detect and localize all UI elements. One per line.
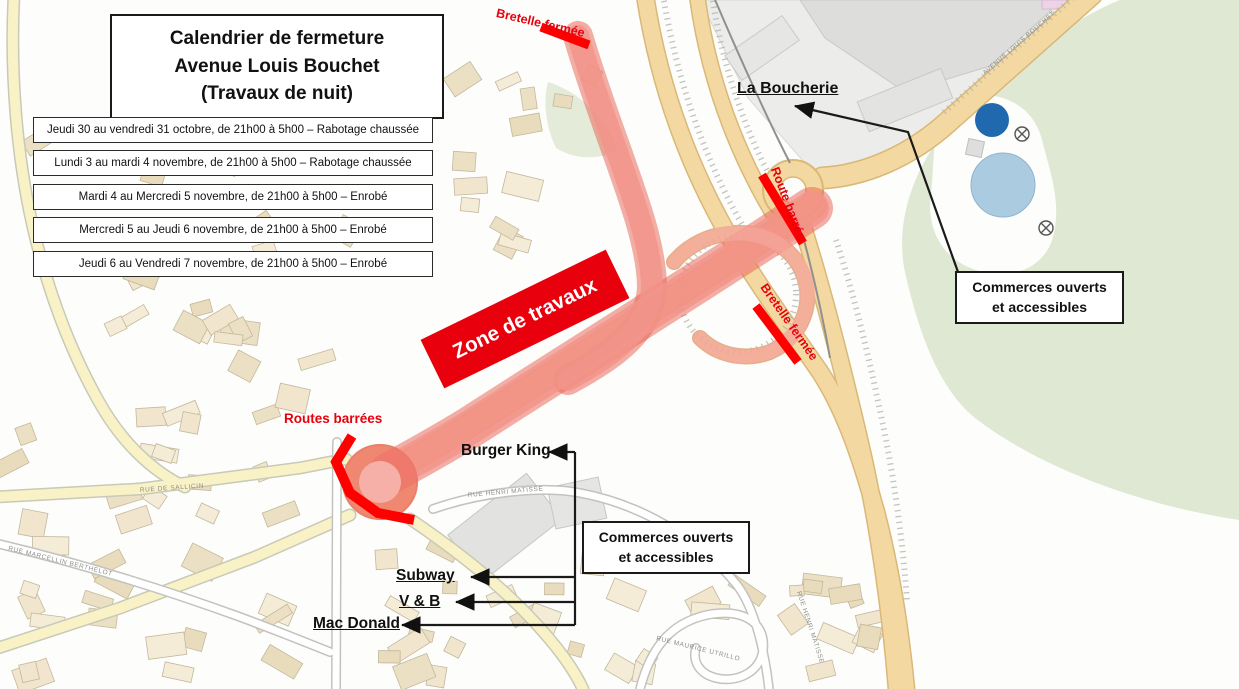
label-routes-barrees: Routes barrées — [284, 411, 382, 426]
schedule-row: Jeudi 6 au Vendredi 7 novembre, de 21h00… — [33, 251, 433, 277]
commerces-box-east: Commerces ouverts et accessibles — [955, 271, 1124, 324]
commerces-box-line-2: et accessibles — [961, 298, 1118, 318]
pond-light — [971, 153, 1035, 217]
title-line-1: Calendrier de fermeture — [116, 25, 438, 53]
title-line-3: (Travaux de nuit) — [116, 80, 438, 108]
schedule-row: Lundi 3 au mardi 4 novembre, de 21h00 à … — [33, 150, 433, 176]
commerces-box-line-1: Commerces ouverts — [961, 278, 1118, 298]
label-burger-king: Burger King — [461, 442, 551, 460]
title-line-2: Avenue Louis Bouchet — [116, 53, 438, 81]
flyer-title: Calendrier de fermeture Avenue Louis Bou… — [110, 14, 444, 119]
pond-dark — [975, 103, 1009, 137]
label-subway: Subway — [396, 567, 455, 585]
schedule-row: Jeudi 30 au vendredi 31 octobre, de 21h0… — [33, 117, 433, 143]
label-mac-donald: Mac Donald — [313, 615, 400, 633]
schedule-row: Mardi 4 au Mercredi 5 novembre, de 21h00… — [33, 184, 433, 210]
label-vb: V & B — [399, 593, 440, 611]
schedule-row: Mercredi 5 au Jeudi 6 novembre, de 21h00… — [33, 217, 433, 243]
commerces-box-line-2: et accessibles — [588, 548, 744, 568]
commerces-box-line-1: Commerces ouverts — [588, 528, 744, 548]
commerces-box-south: Commerces ouverts et accessibles — [582, 521, 750, 574]
label-la-boucherie: La Boucherie — [737, 80, 838, 98]
closure-map-flyer: AVENUE LOUIS BOUCHET RUE DE SALLICIN RUE… — [0, 0, 1239, 689]
